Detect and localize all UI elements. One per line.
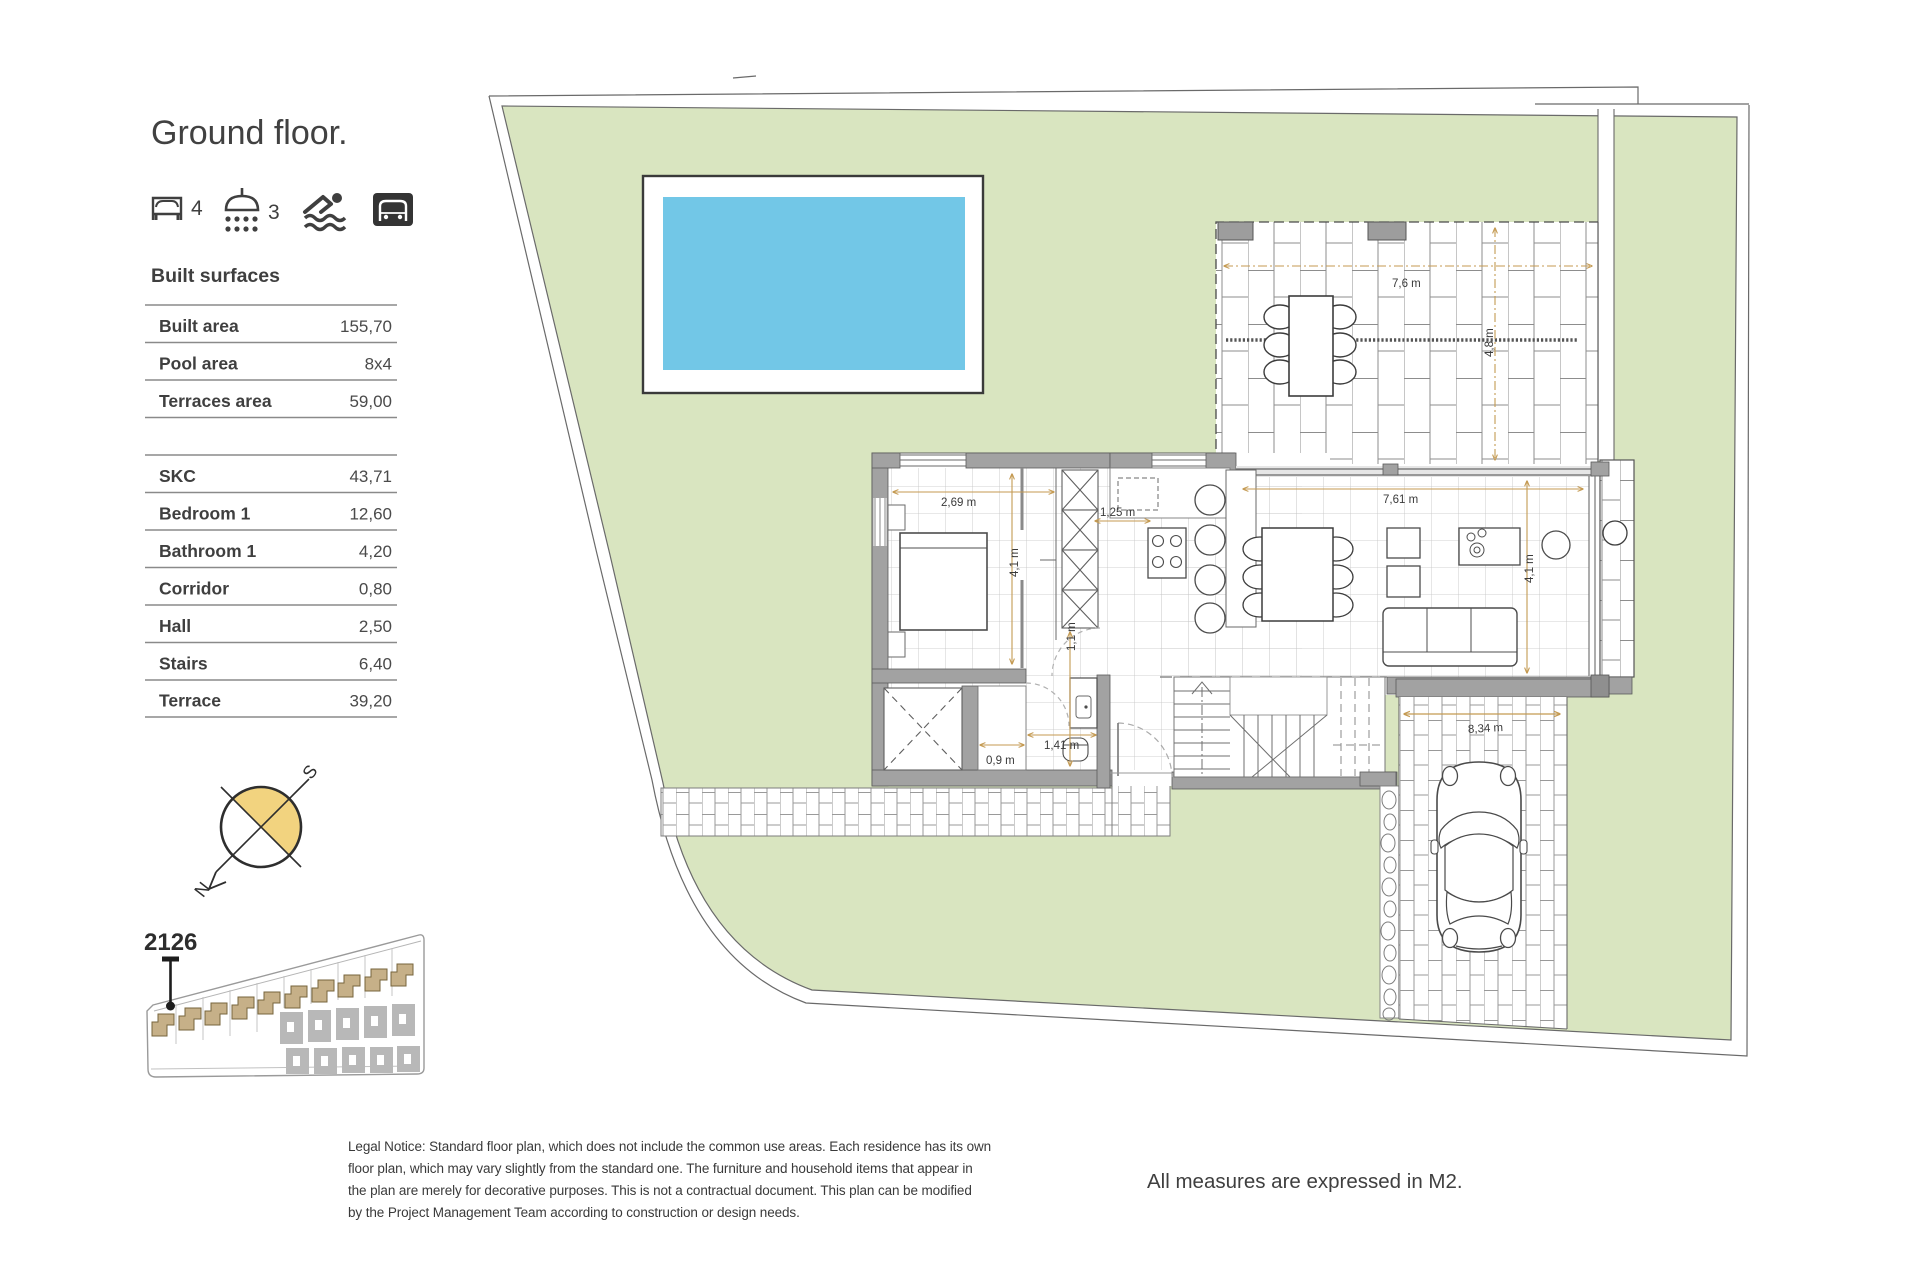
svg-text:the plan are merely for decora: the plan are merely for decorative purpo… (348, 1183, 972, 1198)
svg-text:Bathroom 1: Bathroom 1 (159, 541, 257, 561)
svg-text:Pool area: Pool area (159, 354, 238, 374)
svg-text:4,8 m: 4,8 m (1484, 328, 1496, 357)
svg-text:2126: 2126 (144, 929, 197, 956)
svg-text:Built area: Built area (159, 316, 239, 336)
svg-text:43,71: 43,71 (349, 467, 392, 486)
svg-text:3: 3 (268, 201, 280, 224)
svg-text:Terrace: Terrace (159, 691, 221, 711)
svg-text:8x4: 8x4 (365, 355, 392, 374)
svg-text:Stairs: Stairs (159, 654, 208, 674)
svg-text:Hall: Hall (159, 616, 191, 636)
svg-text:by the Project Management Team: by the Project Management Team according… (348, 1205, 800, 1220)
svg-text:Legal Notice: Standard floor p: Legal Notice: Standard floor plan, which… (348, 1139, 991, 1154)
svg-text:All measures are expressed in: All measures are expressed in M2. (1147, 1170, 1463, 1193)
svg-text:0,9 m: 0,9 m (986, 755, 1015, 767)
svg-text:155,70: 155,70 (340, 317, 392, 336)
svg-text:0,80: 0,80 (359, 580, 392, 599)
svg-text:4: 4 (191, 197, 203, 220)
svg-text:Ground floor.: Ground floor. (151, 114, 348, 152)
svg-text:Corridor: Corridor (159, 579, 229, 599)
svg-text:1,41 m: 1,41 m (1044, 740, 1079, 752)
svg-text:4,20: 4,20 (359, 542, 392, 561)
svg-text:2,69 m: 2,69 m (941, 497, 976, 509)
svg-text:2,50: 2,50 (359, 617, 392, 636)
svg-text:Bedroom 1: Bedroom 1 (159, 504, 251, 524)
svg-text:12,60: 12,60 (349, 505, 392, 524)
svg-text:Built surfaces: Built surfaces (151, 265, 280, 287)
svg-text:39,20: 39,20 (349, 692, 392, 711)
svg-text:59,00: 59,00 (349, 392, 392, 411)
svg-text:floor plan, which may vary sli: floor plan, which may vary slightly from… (348, 1161, 973, 1176)
svg-text:Terraces area: Terraces area (159, 391, 272, 411)
svg-text:SKC: SKC (159, 466, 196, 486)
svg-text:7,6 m: 7,6 m (1392, 278, 1421, 290)
svg-text:6,40: 6,40 (359, 655, 392, 674)
svg-text:1,1 m: 1,1 m (1066, 622, 1078, 651)
svg-text:4,1 m: 4,1 m (1524, 554, 1536, 583)
svg-text:4,1 m: 4,1 m (1009, 548, 1021, 577)
svg-text:1,25 m: 1,25 m (1100, 507, 1135, 519)
svg-text:8,34 m: 8,34 m (1468, 722, 1504, 736)
svg-text:7,61 m: 7,61 m (1383, 494, 1418, 506)
